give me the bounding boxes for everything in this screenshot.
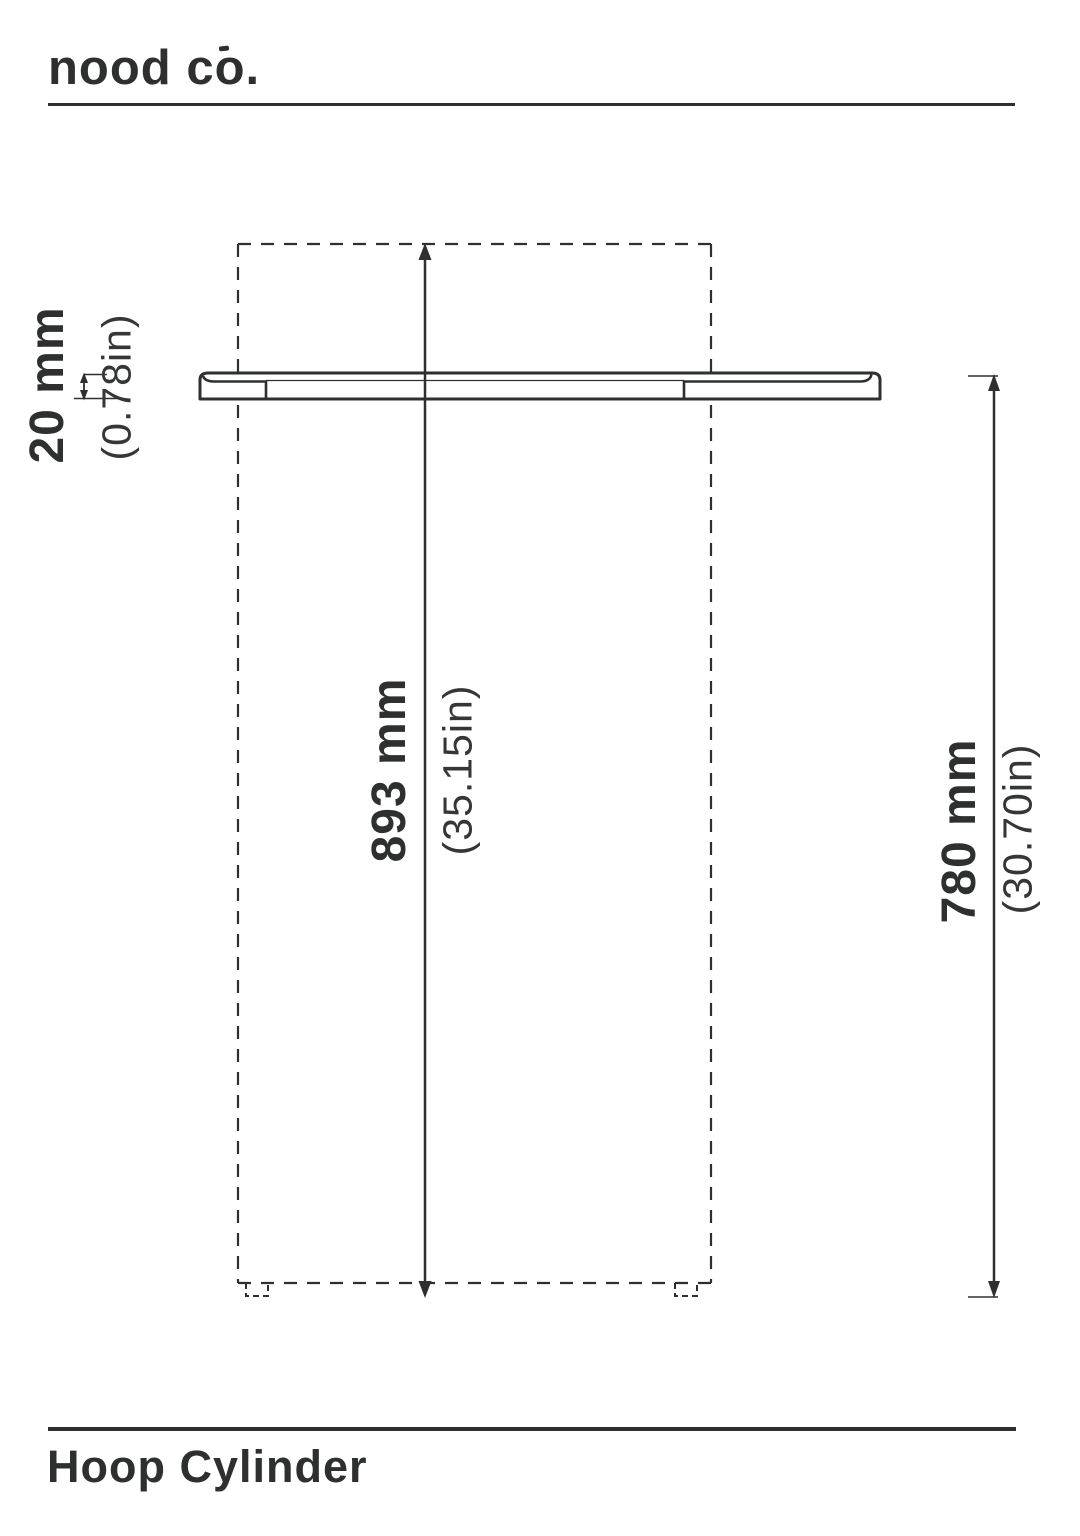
rim-height-label-metric: 780 mm	[936, 739, 984, 924]
spec-sheet: nood co.	[0, 0, 1080, 1536]
left-foot-dashed	[246, 1283, 268, 1296]
thickness-label-metric: 20 mm	[24, 306, 72, 463]
overall-height-dimension	[419, 243, 432, 1298]
overall-height-arrowhead-bottom-icon	[419, 1281, 432, 1298]
right-foot-dashed	[675, 1283, 697, 1296]
product-title: Hoop Cylinder	[47, 1441, 368, 1493]
overall-height-arrowhead-top-icon	[419, 243, 432, 260]
dimension-drawing	[0, 0, 1080, 1536]
rim-outer-outline	[200, 373, 880, 399]
rim-cross-section	[200, 373, 880, 399]
footer-divider	[48, 1427, 1016, 1431]
rim-height-arrowhead-bottom-icon	[988, 1281, 1000, 1298]
thickness-label-imperial: (0.78in)	[97, 313, 138, 460]
overall-height-label-imperial: (35.15in)	[438, 685, 479, 856]
overall-height-label-metric: 893 mm	[366, 678, 414, 863]
cylinder-feet-dashed	[246, 1283, 697, 1296]
rim-height-label-imperial: (30.70in)	[998, 744, 1039, 915]
